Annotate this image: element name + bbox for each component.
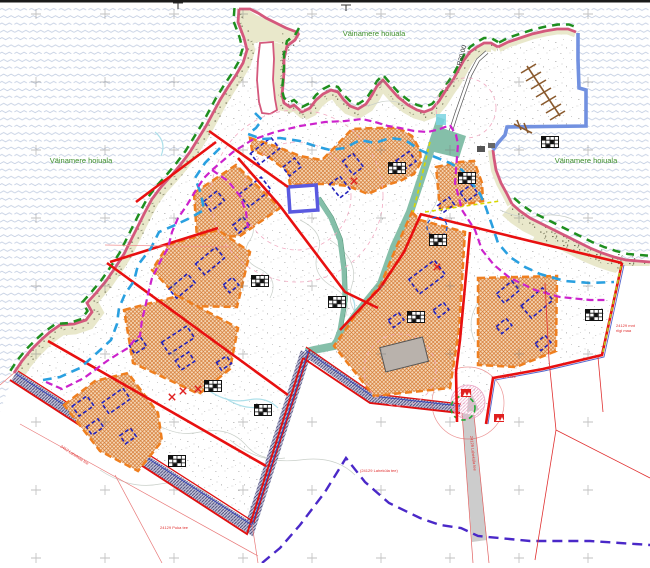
svg-text:riigi maa: riigi maa xyxy=(616,328,632,333)
svg-text:Väinamere hoiuala: Väinamere hoiuala xyxy=(555,156,618,165)
svg-text:(24129 Laheküla tee): (24129 Laheküla tee) xyxy=(360,468,398,473)
svg-text:24129 tee: 24129 tee xyxy=(498,374,517,379)
svg-text:Väinamere hoiuala: Väinamere hoiuala xyxy=(50,156,113,165)
svg-text:24129 Puka tee: 24129 Puka tee xyxy=(160,525,189,530)
svg-text:Väinamere hoiuala: Väinamere hoiuala xyxy=(343,29,406,38)
